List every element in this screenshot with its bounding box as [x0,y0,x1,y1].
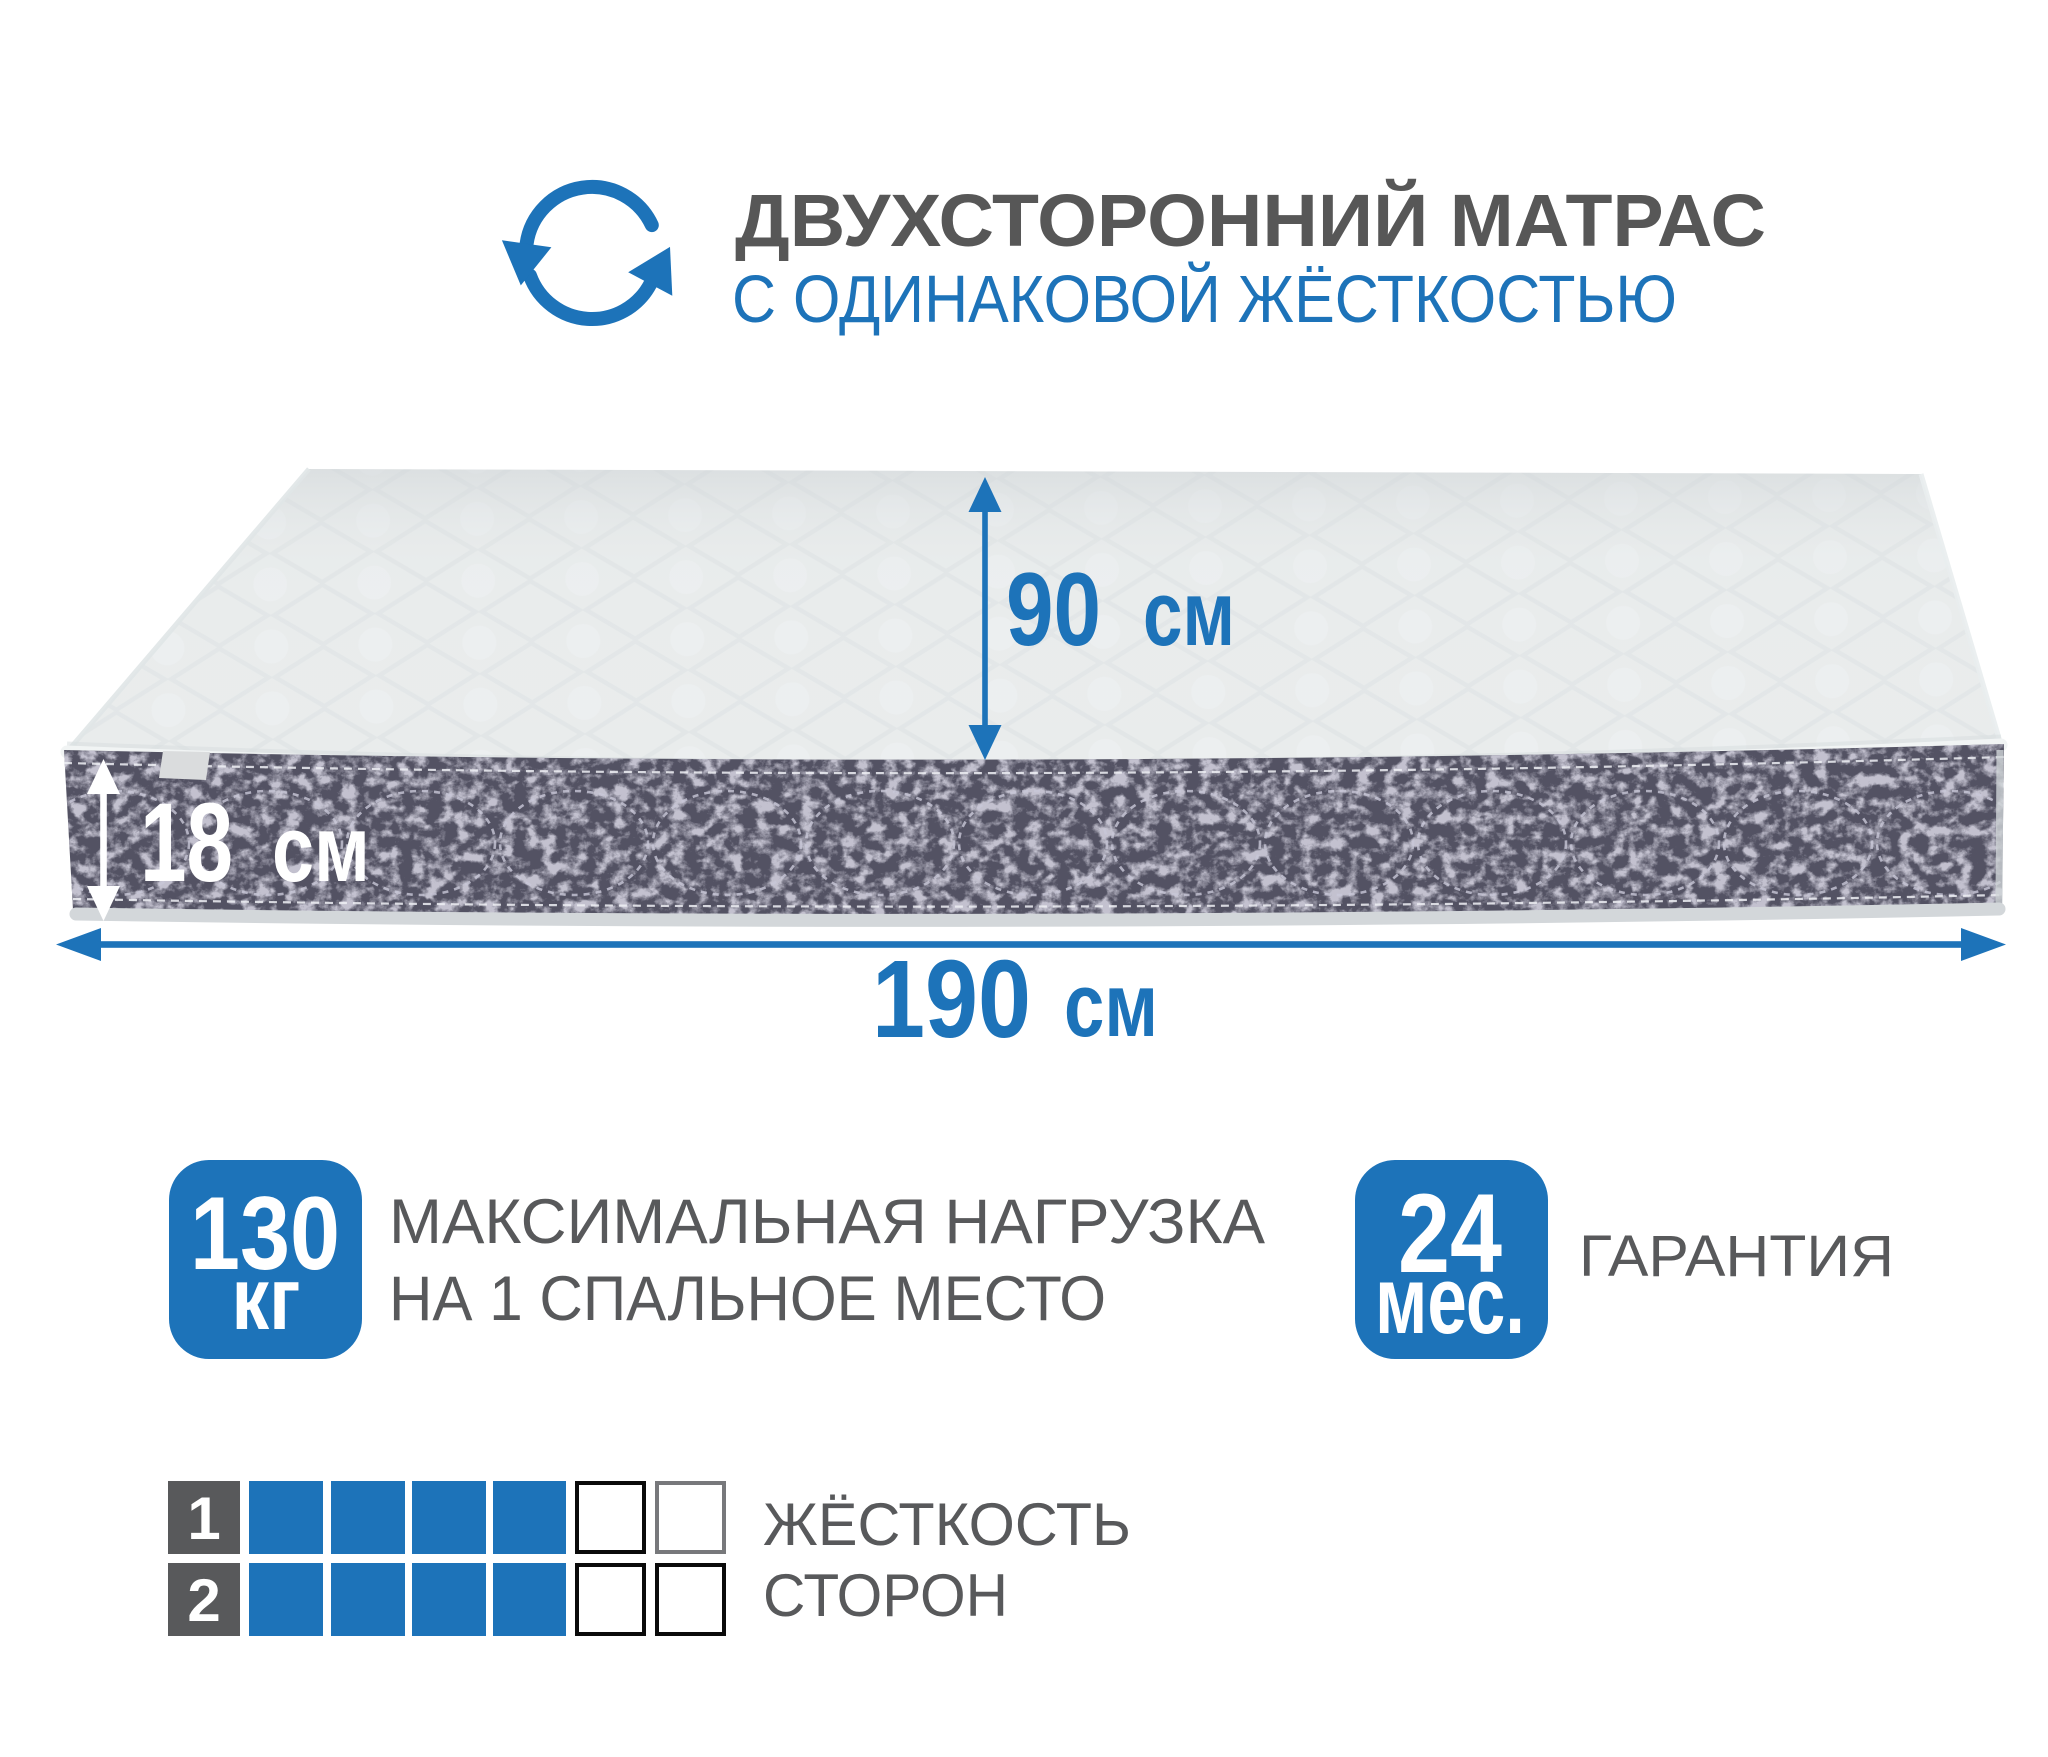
svg-text:см: см [1064,956,1158,1056]
svg-text:см: см [1143,563,1235,665]
svg-text:2: 2 [187,1567,220,1634]
svg-text:МАКСИМАЛЬНАЯ НАГРУЗКА: МАКСИМАЛЬНАЯ НАГРУЗКА [389,1187,1265,1257]
svg-text:мес.: мес. [1375,1247,1525,1354]
svg-text:ДВУХСТОРОННИЙ МАТРАС: ДВУХСТОРОННИЙ МАТРАС [735,178,1766,262]
svg-text:ЖЁСТКОСТЬ: ЖЁСТКОСТЬ [763,1491,1131,1558]
svg-text:С ОДИНАКОВОЙ ЖЁСТКОСТЬЮ: С ОДИНАКОВОЙ ЖЁСТКОСТЬЮ [732,261,1677,337]
svg-text:1: 1 [187,1485,220,1552]
svg-text:18: 18 [140,780,233,905]
svg-text:НА 1 СПАЛЬНОЕ МЕСТО: НА 1 СПАЛЬНОЕ МЕСТО [389,1264,1106,1334]
svg-text:см: см [272,796,370,901]
svg-text:ГАРАНТИЯ: ГАРАНТИЯ [1579,1224,1894,1289]
svg-text:190: 190 [872,938,1031,1061]
svg-text:90: 90 [1006,552,1101,668]
svg-text:СТОРОН: СТОРОН [763,1562,1008,1629]
svg-text:кг: кг [232,1249,301,1348]
